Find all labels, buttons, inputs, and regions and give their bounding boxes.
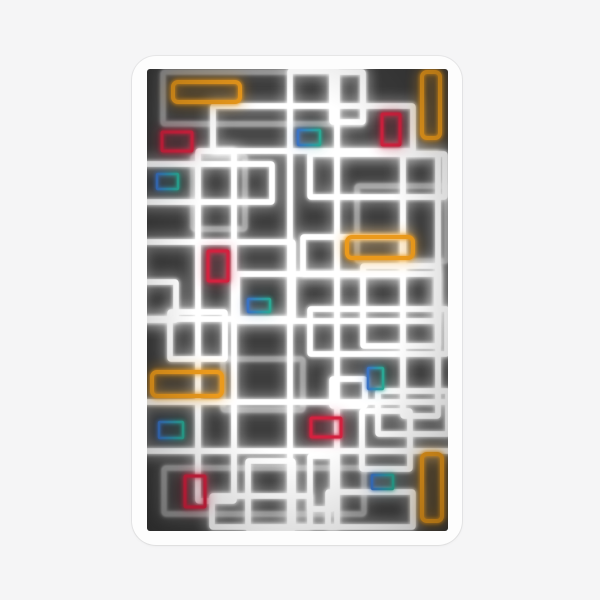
sticker-artwork-frame xyxy=(147,69,448,531)
neon-rectangles-layer xyxy=(147,71,448,529)
sticker[interactable] xyxy=(132,56,462,545)
page-background xyxy=(0,0,600,600)
sticker-artwork xyxy=(147,69,448,531)
